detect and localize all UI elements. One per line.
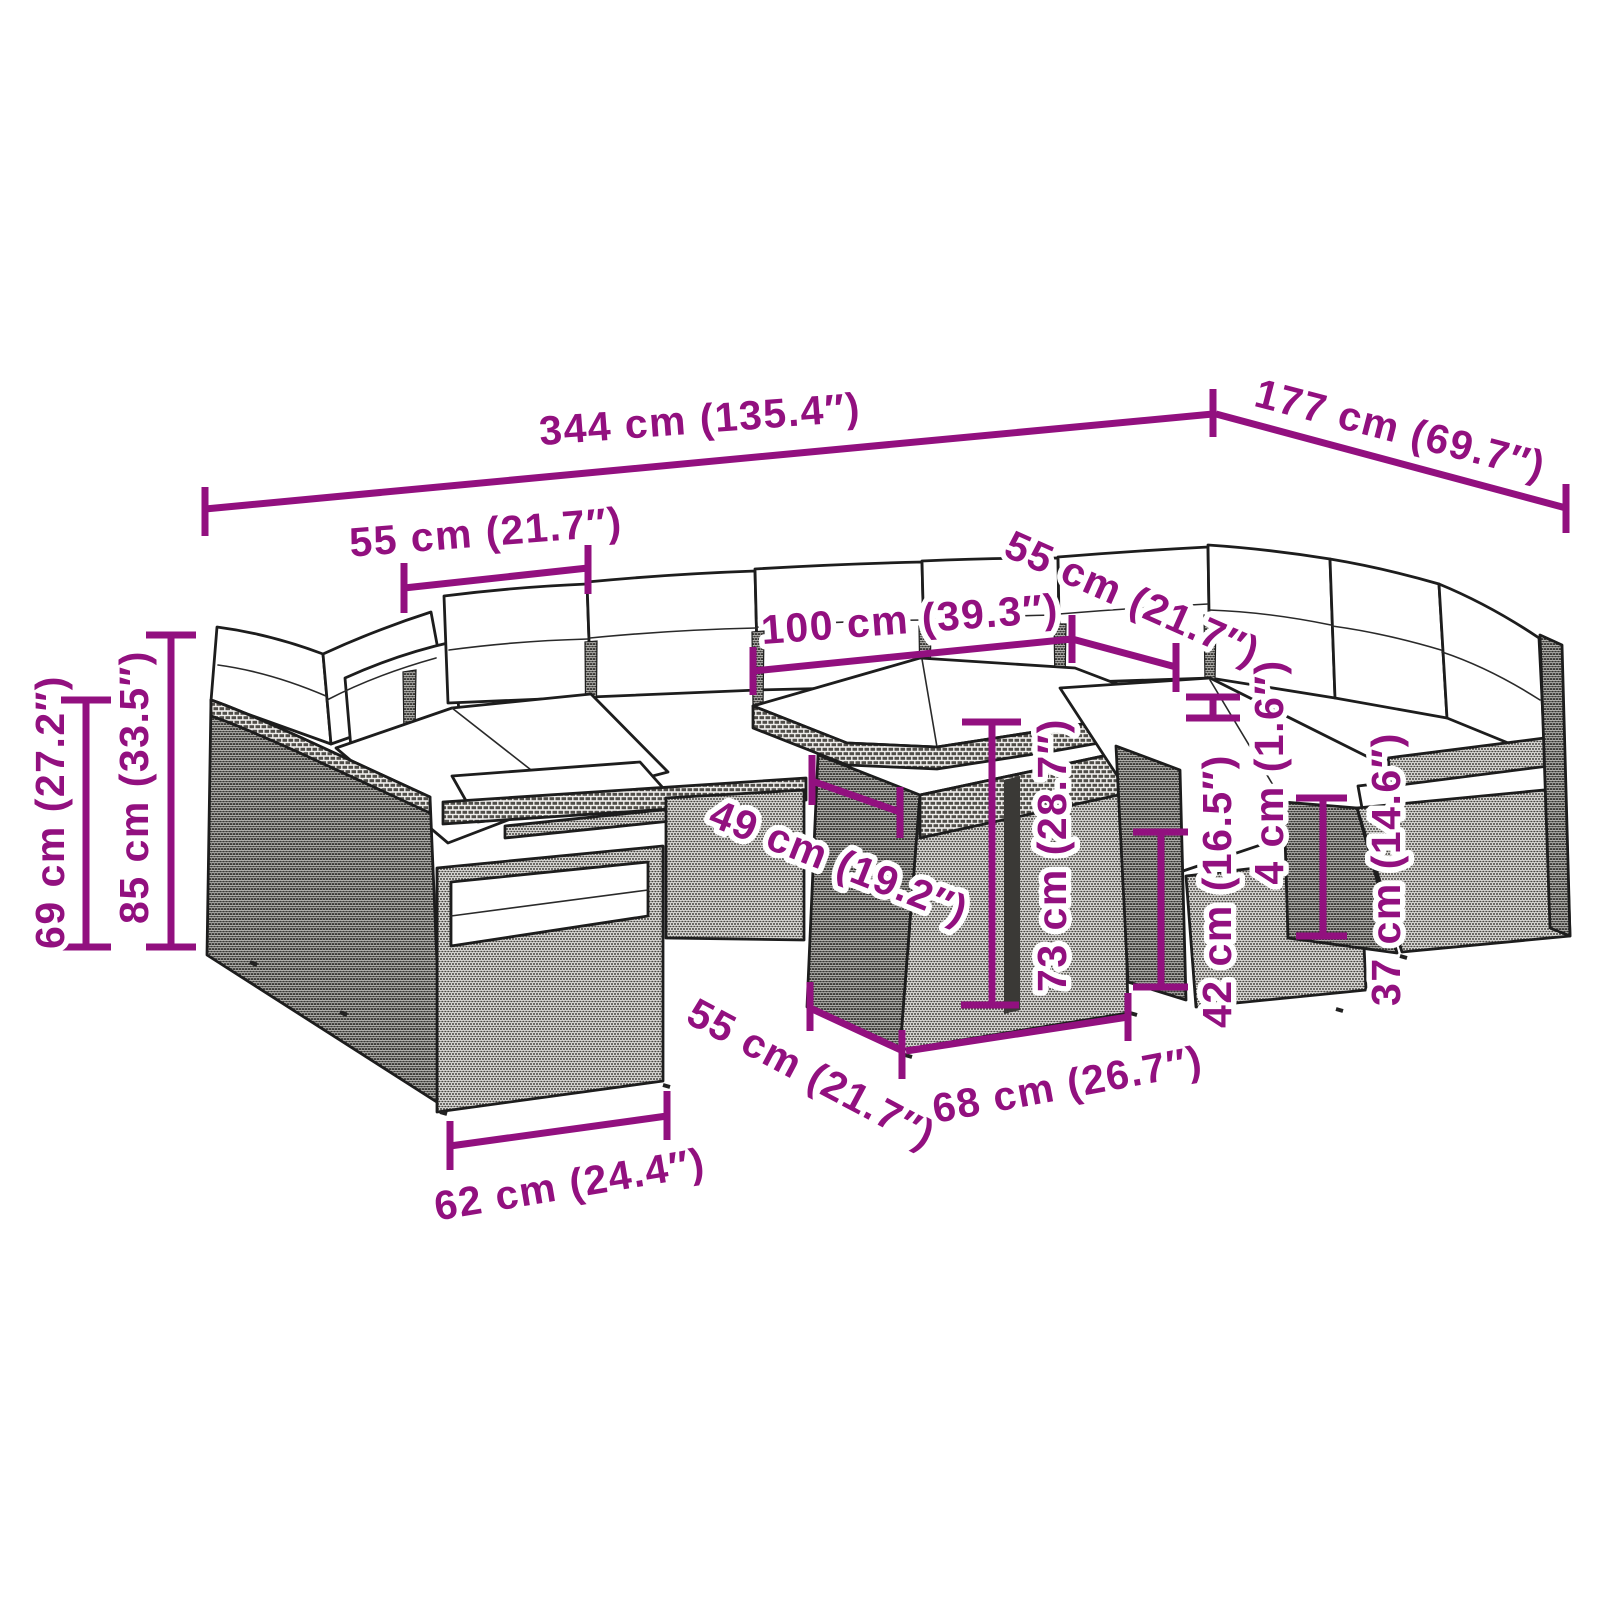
svg-text:73 cm (28.7″): 73 cm (28.7″)	[1029, 718, 1075, 992]
svg-text:37 cm (14.6″): 37 cm (14.6″)	[1363, 732, 1409, 1006]
svg-text:4 cm (1.6″): 4 cm (1.6″)	[1246, 659, 1292, 884]
svg-text:69 cm (27.2″): 69 cm (27.2″)	[27, 675, 73, 949]
svg-text:85 cm (33.5″): 85 cm (33.5″)	[111, 650, 157, 924]
svg-text:42 cm (16.5″): 42 cm (16.5″)	[1194, 754, 1240, 1028]
